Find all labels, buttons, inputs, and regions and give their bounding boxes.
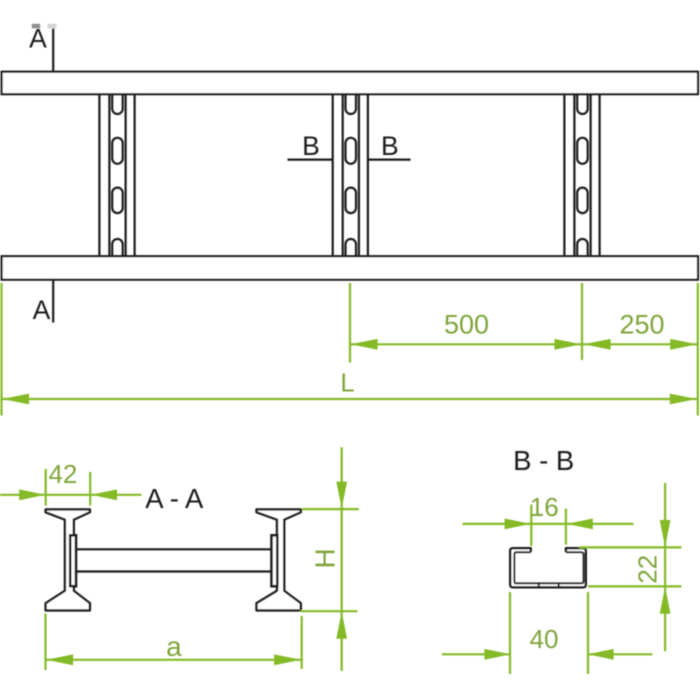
svg-text:500: 500 bbox=[444, 310, 489, 340]
svg-text:250: 250 bbox=[619, 310, 664, 340]
svg-text:40: 40 bbox=[530, 624, 559, 654]
svg-text:A - A: A - A bbox=[145, 483, 204, 514]
svg-text:B: B bbox=[302, 131, 320, 161]
svg-text:H: H bbox=[310, 548, 341, 568]
svg-text:B: B bbox=[381, 131, 399, 161]
svg-text:L: L bbox=[340, 370, 354, 398]
svg-text:16: 16 bbox=[530, 492, 559, 522]
svg-text:a: a bbox=[166, 631, 182, 662]
svg-text:22: 22 bbox=[633, 555, 663, 584]
svg-text:B - B: B - B bbox=[513, 445, 574, 476]
svg-text:42: 42 bbox=[48, 459, 77, 489]
svg-text:A: A bbox=[33, 295, 51, 325]
